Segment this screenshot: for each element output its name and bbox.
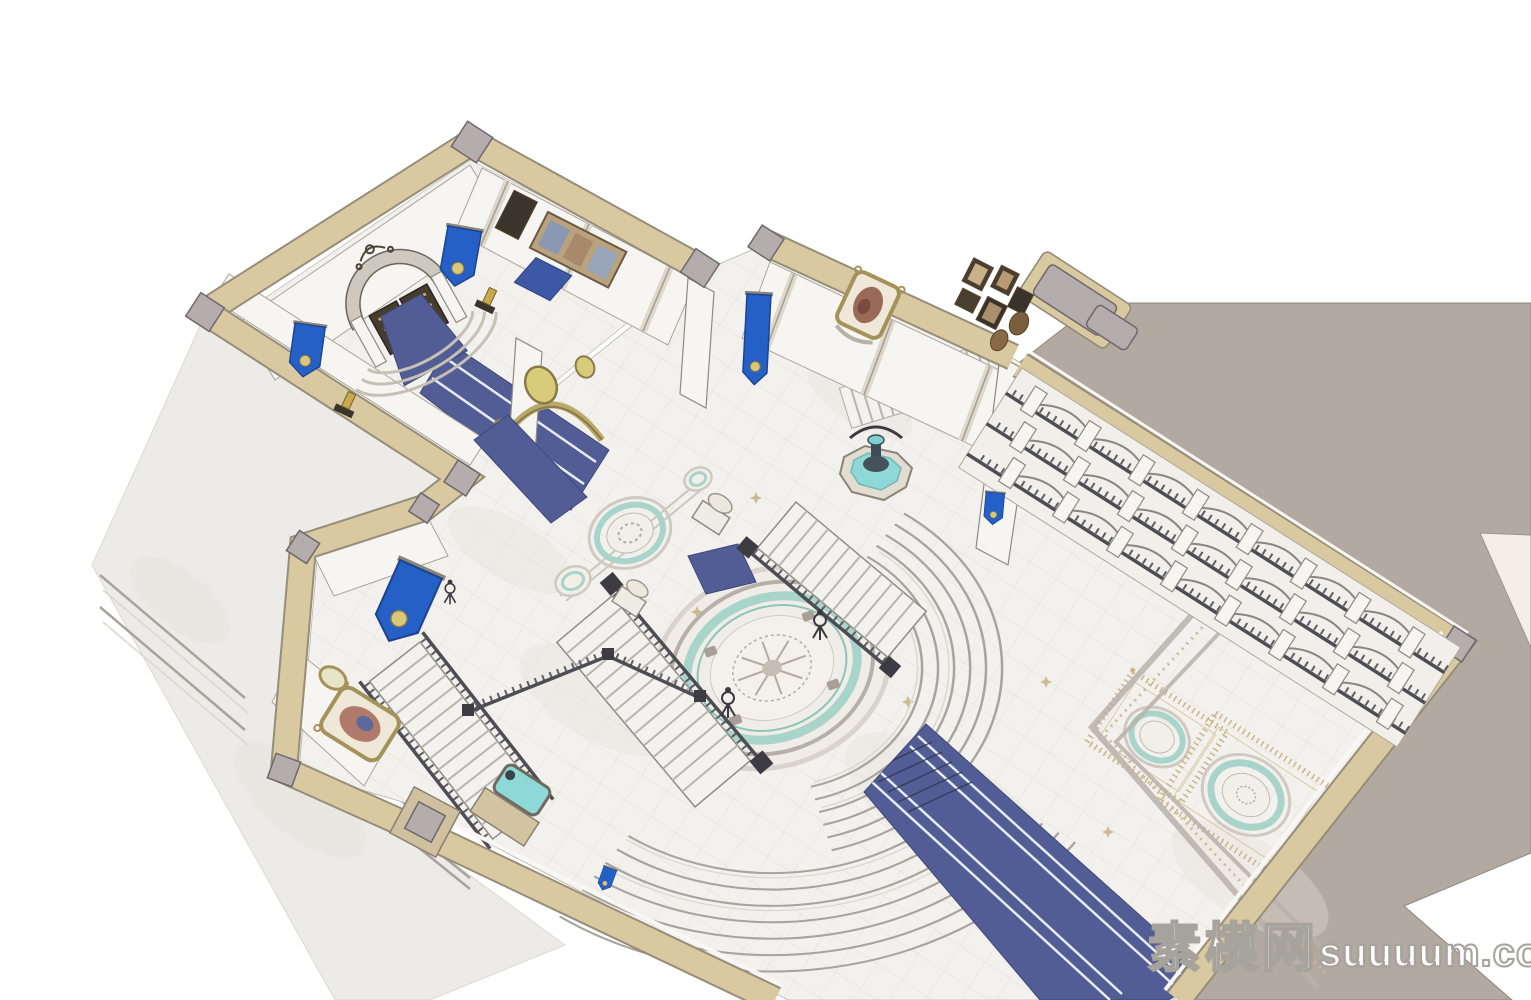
watermark-latin-text: suuuum.com	[1319, 931, 1531, 976]
watermark-cjk-text: 素模网	[1148, 906, 1319, 982]
watermark: 素模网suuuum.com	[1148, 906, 1531, 982]
palace-interior-render	[0, 0, 1531, 1000]
fountain-central	[840, 427, 912, 500]
render-canvas: 素模网suuuum.com	[0, 0, 1531, 1000]
